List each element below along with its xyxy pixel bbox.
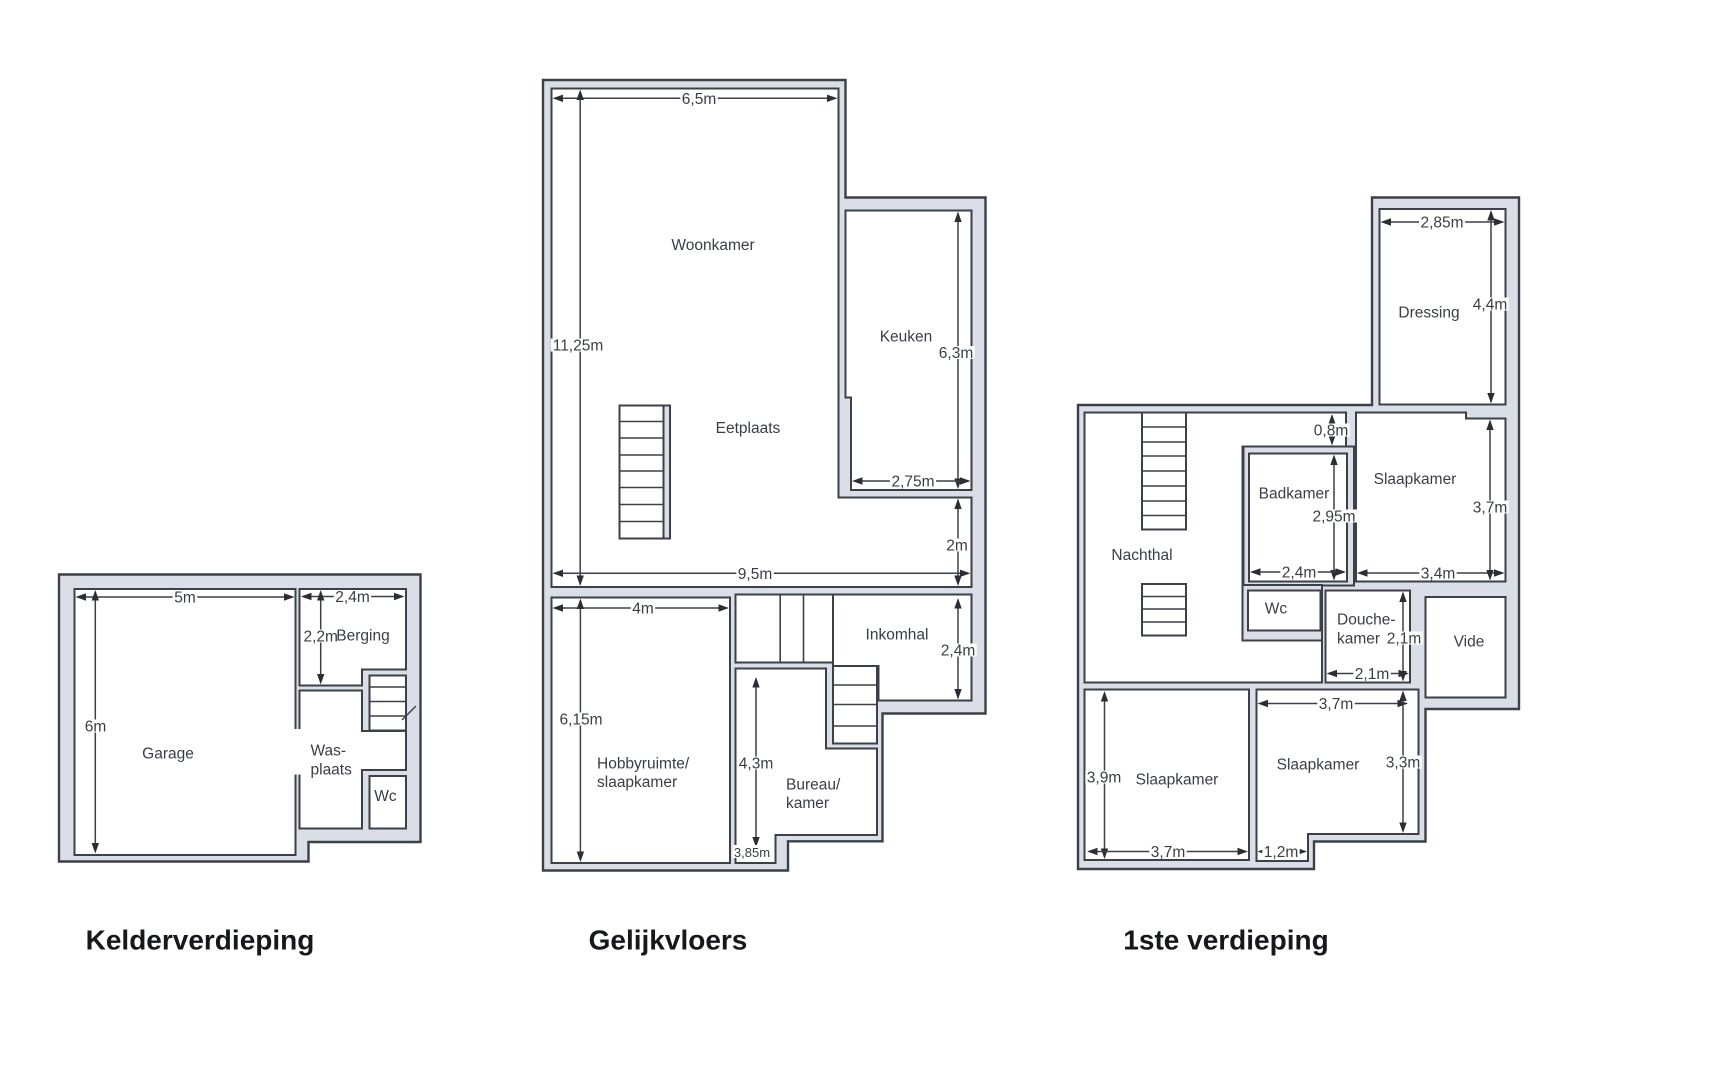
svg-text:Wc: Wc [374, 788, 397, 805]
svg-text:slaapkamer: slaapkamer [597, 774, 677, 791]
svg-text:2,4m: 2,4m [1282, 565, 1316, 582]
svg-text:4,4m: 4,4m [1473, 297, 1507, 314]
svg-text:Gelijkvloers: Gelijkvloers [589, 925, 748, 956]
svg-text:Badkamer: Badkamer [1259, 486, 1330, 503]
svg-text:Wc: Wc [1265, 601, 1288, 618]
svg-text:Eetplaats: Eetplaats [716, 420, 781, 437]
svg-text:3,3m: 3,3m [1386, 755, 1420, 772]
svg-text:1ste verdieping: 1ste verdieping [1123, 925, 1328, 956]
svg-text:kamer: kamer [786, 795, 829, 812]
svg-text:Garage: Garage [142, 746, 194, 763]
svg-text:Kelderverdieping: Kelderverdieping [86, 925, 315, 956]
svg-text:Slaapkamer: Slaapkamer [1374, 471, 1457, 488]
svg-text:2,2m: 2,2m [303, 629, 337, 646]
svg-text:4,3m: 4,3m [739, 756, 773, 773]
svg-text:6,5m: 6,5m [682, 91, 716, 108]
svg-text:2m: 2m [946, 538, 968, 555]
svg-text:Hobbyruimte/: Hobbyruimte/ [597, 756, 690, 773]
svg-text:Nachthal: Nachthal [1111, 547, 1172, 564]
svg-text:2,4m: 2,4m [941, 643, 975, 660]
svg-text:Douche-: Douche- [1337, 612, 1396, 629]
svg-text:Slaapkamer: Slaapkamer [1277, 757, 1360, 774]
svg-text:2,1m: 2,1m [1355, 666, 1389, 683]
svg-text:6,15m: 6,15m [559, 712, 602, 729]
svg-text:3,4m: 3,4m [1421, 566, 1455, 583]
svg-text:3,9m: 3,9m [1087, 770, 1121, 787]
svg-text:plaats: plaats [311, 762, 353, 779]
svg-text:11,25m: 11,25m [553, 338, 604, 355]
svg-text:Inkomhal: Inkomhal [866, 627, 929, 644]
svg-text:Woonkamer: Woonkamer [671, 237, 754, 254]
svg-text:3,7m: 3,7m [1473, 500, 1507, 517]
svg-text:3,7m: 3,7m [1151, 844, 1185, 861]
svg-text:Slaapkamer: Slaapkamer [1136, 772, 1219, 789]
svg-text:1,2m: 1,2m [1264, 844, 1298, 861]
svg-text:Berging: Berging [336, 628, 389, 645]
svg-text:2,85m: 2,85m [1420, 215, 1463, 232]
svg-text:2,1m: 2,1m [1387, 631, 1421, 648]
svg-text:Keuken: Keuken [880, 329, 933, 346]
svg-text:0,8m: 0,8m [1314, 423, 1348, 440]
svg-text:6,3m: 6,3m [939, 345, 973, 362]
svg-text:3,7m: 3,7m [1319, 696, 1353, 713]
svg-text:Dressing: Dressing [1398, 305, 1459, 322]
svg-text:6m: 6m [85, 719, 107, 736]
svg-text:4m: 4m [632, 601, 654, 618]
svg-text:Vide: Vide [1454, 634, 1485, 651]
svg-text:5m: 5m [174, 590, 196, 607]
svg-text:9,5m: 9,5m [738, 566, 772, 583]
svg-text:Was-: Was- [311, 743, 347, 760]
svg-text:2,4m: 2,4m [335, 589, 369, 606]
svg-text:kamer: kamer [1337, 631, 1380, 648]
svg-text:Bureau/: Bureau/ [786, 777, 841, 794]
svg-text:2,75m: 2,75m [891, 474, 934, 491]
svg-text:2,95m: 2,95m [1312, 509, 1355, 526]
svg-text:3,85m: 3,85m [734, 845, 770, 860]
